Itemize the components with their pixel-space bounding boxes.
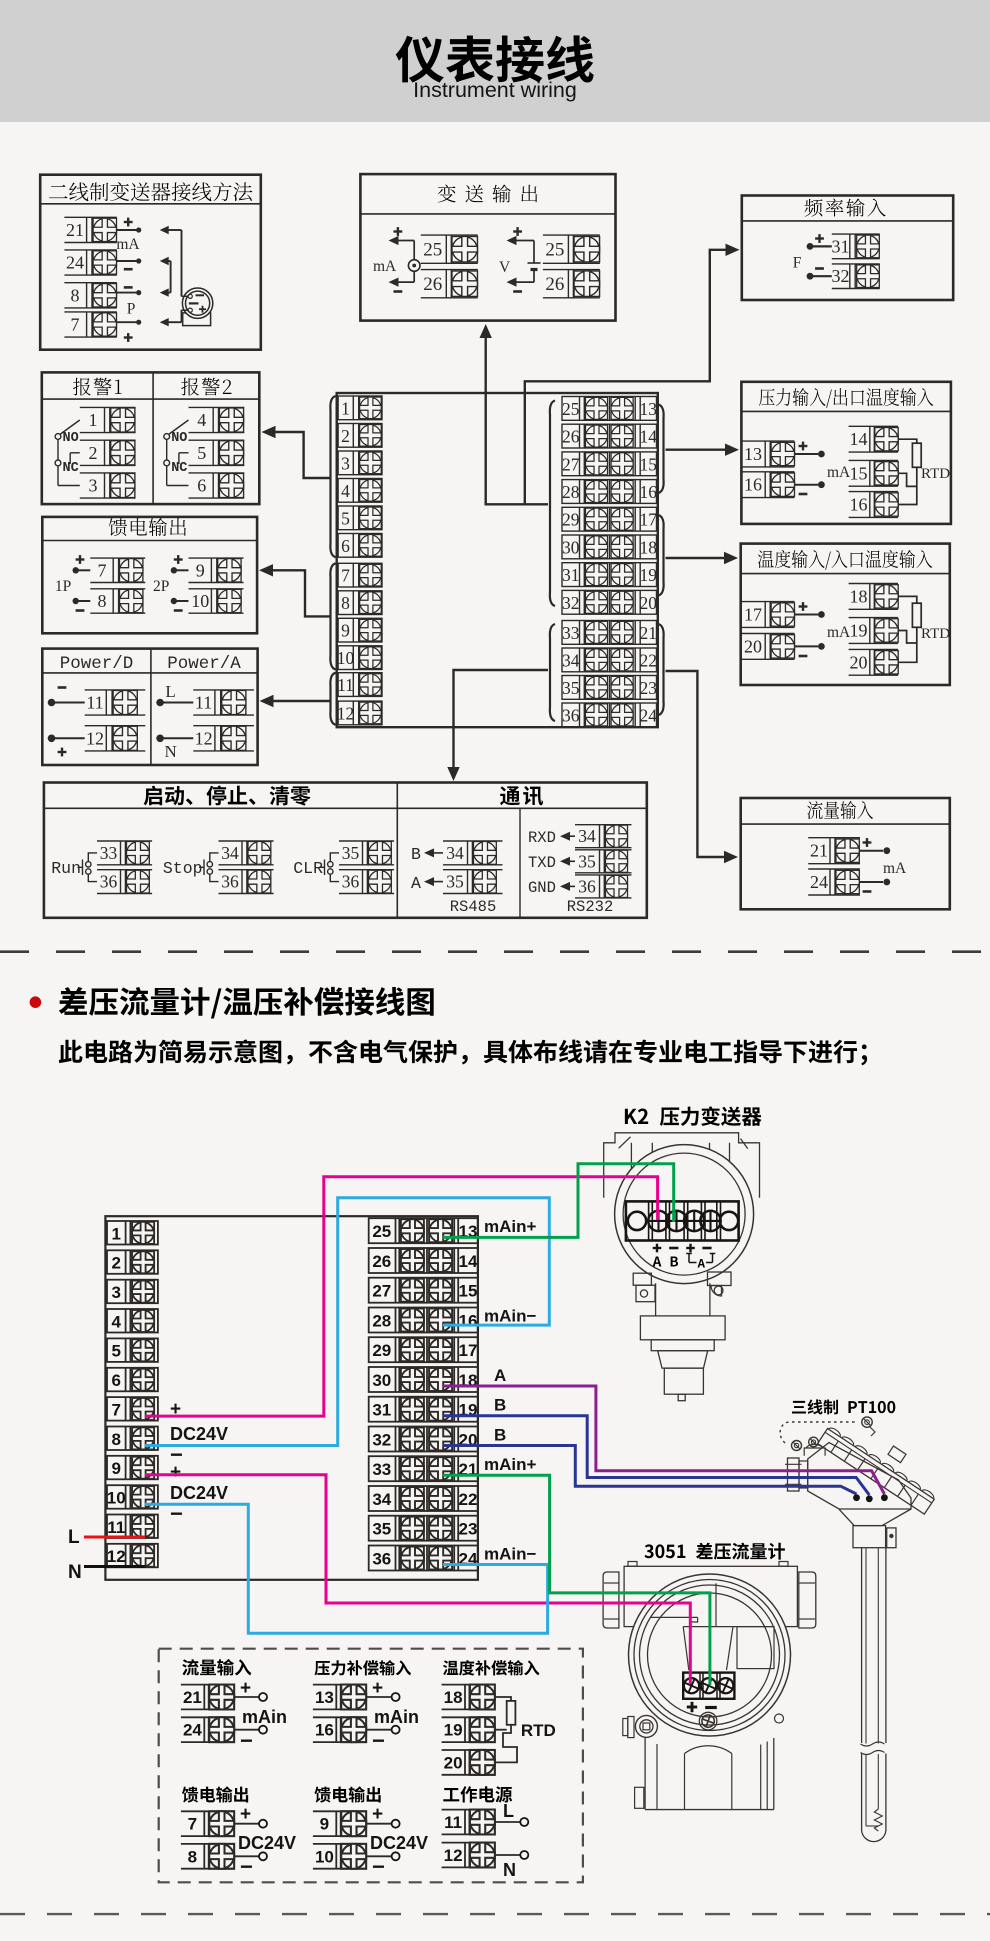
svg-text:16: 16 bbox=[850, 495, 868, 515]
svg-text:5: 5 bbox=[341, 508, 350, 528]
svg-text:7: 7 bbox=[111, 1400, 120, 1419]
svg-text:36: 36 bbox=[100, 872, 118, 892]
svg-text:12: 12 bbox=[195, 728, 213, 748]
svg-text:34: 34 bbox=[446, 843, 464, 863]
svg-text:RXD: RXD bbox=[528, 829, 556, 847]
svg-text:A: A bbox=[411, 874, 421, 893]
svg-text:16: 16 bbox=[315, 1721, 334, 1740]
svg-text:TXD: TXD bbox=[528, 854, 556, 872]
svg-text:−: − bbox=[240, 1728, 253, 1753]
svg-text:11: 11 bbox=[195, 693, 212, 713]
svg-text:CLR: CLR bbox=[293, 859, 323, 878]
svg-text:15: 15 bbox=[640, 454, 658, 474]
svg-text:+: + bbox=[240, 1804, 251, 1825]
svg-text:11: 11 bbox=[444, 1813, 462, 1832]
svg-text:23: 23 bbox=[459, 1520, 478, 1539]
svg-text:11: 11 bbox=[337, 675, 354, 695]
svg-text:25: 25 bbox=[545, 240, 564, 261]
svg-text:22: 22 bbox=[640, 650, 658, 670]
svg-text:20: 20 bbox=[850, 652, 868, 672]
svg-text:35: 35 bbox=[446, 872, 464, 892]
svg-text:10: 10 bbox=[107, 1489, 126, 1508]
svg-text:15: 15 bbox=[459, 1282, 478, 1301]
svg-text:4: 4 bbox=[197, 410, 206, 430]
svg-text:+: + bbox=[372, 1804, 383, 1825]
svg-text:RTD: RTD bbox=[521, 1721, 556, 1740]
svg-text:L: L bbox=[165, 682, 175, 701]
svg-text:24: 24 bbox=[810, 872, 828, 892]
svg-text:−: − bbox=[240, 1854, 253, 1879]
svg-text:3: 3 bbox=[89, 476, 98, 496]
svg-text:23: 23 bbox=[640, 678, 658, 698]
svg-text:GND: GND bbox=[528, 879, 556, 897]
svg-text:35: 35 bbox=[562, 678, 580, 698]
svg-text:31: 31 bbox=[832, 236, 850, 256]
svg-text:P: P bbox=[127, 301, 136, 318]
svg-text:36: 36 bbox=[578, 876, 596, 896]
svg-text:+: + bbox=[372, 1678, 383, 1699]
svg-text:32: 32 bbox=[372, 1431, 391, 1450]
svg-text:V: V bbox=[499, 259, 511, 276]
svg-text:29: 29 bbox=[372, 1341, 391, 1360]
svg-text:31: 31 bbox=[562, 565, 580, 585]
svg-text:N: N bbox=[164, 742, 176, 761]
svg-text:34: 34 bbox=[562, 650, 580, 670]
svg-text:35: 35 bbox=[342, 843, 360, 863]
svg-text:9: 9 bbox=[320, 1815, 329, 1834]
svg-text:mAin+: mAin+ bbox=[484, 1455, 537, 1474]
svg-text:29: 29 bbox=[562, 510, 580, 530]
svg-text:A: A bbox=[494, 1366, 506, 1385]
svg-text:mAin−: mAin− bbox=[484, 1307, 537, 1326]
svg-text:20: 20 bbox=[640, 593, 658, 613]
svg-text:Run: Run bbox=[51, 859, 81, 878]
svg-text:36: 36 bbox=[342, 872, 360, 892]
svg-text:mA: mA bbox=[373, 258, 397, 275]
svg-text:1: 1 bbox=[111, 1224, 120, 1243]
svg-text:1P: 1P bbox=[55, 578, 71, 595]
svg-text:10: 10 bbox=[315, 1847, 334, 1866]
svg-text:NO: NO bbox=[63, 431, 79, 446]
svg-text:5: 5 bbox=[111, 1342, 120, 1361]
svg-text:DC24V: DC24V bbox=[238, 1833, 296, 1853]
svg-text:35: 35 bbox=[372, 1520, 391, 1539]
svg-text:13: 13 bbox=[640, 399, 658, 419]
svg-text:2: 2 bbox=[341, 426, 350, 446]
svg-text:RTD: RTD bbox=[921, 626, 950, 642]
svg-text:30: 30 bbox=[372, 1371, 391, 1390]
svg-text:DC24V: DC24V bbox=[370, 1833, 428, 1853]
svg-text:6: 6 bbox=[341, 536, 350, 556]
svg-text:26: 26 bbox=[545, 274, 564, 295]
svg-text:RS485: RS485 bbox=[450, 898, 497, 916]
svg-text:8: 8 bbox=[341, 593, 350, 613]
svg-text:26: 26 bbox=[562, 427, 580, 447]
svg-text:mAin+: mAin+ bbox=[484, 1217, 537, 1236]
svg-text:32: 32 bbox=[832, 266, 850, 286]
svg-text:6: 6 bbox=[197, 476, 206, 496]
svg-text:27: 27 bbox=[372, 1282, 391, 1301]
svg-text:Stop: Stop bbox=[163, 859, 203, 878]
svg-text:−: − bbox=[372, 1728, 385, 1753]
svg-text:19: 19 bbox=[850, 621, 868, 641]
svg-text:5: 5 bbox=[197, 443, 206, 463]
svg-text:26: 26 bbox=[423, 274, 442, 295]
svg-text:8: 8 bbox=[98, 591, 107, 611]
svg-text:mAin: mAin bbox=[374, 1707, 419, 1727]
svg-text:22: 22 bbox=[459, 1490, 478, 1509]
svg-text:24: 24 bbox=[640, 705, 658, 725]
svg-text:31: 31 bbox=[372, 1401, 391, 1420]
svg-text:4: 4 bbox=[111, 1312, 121, 1331]
svg-text:8: 8 bbox=[111, 1430, 120, 1449]
svg-text:L: L bbox=[503, 1801, 514, 1821]
svg-text:mA: mA bbox=[883, 860, 907, 877]
svg-text:1: 1 bbox=[341, 398, 350, 418]
svg-text:21: 21 bbox=[810, 841, 828, 861]
svg-text:10: 10 bbox=[191, 591, 209, 611]
svg-text:21: 21 bbox=[640, 623, 658, 643]
svg-text:1: 1 bbox=[89, 410, 98, 430]
svg-text:+: + bbox=[240, 1678, 251, 1699]
svg-text:19: 19 bbox=[444, 1721, 463, 1740]
svg-text:mA: mA bbox=[116, 236, 140, 253]
svg-text:32: 32 bbox=[562, 593, 580, 613]
svg-text:28: 28 bbox=[562, 482, 580, 502]
svg-text:NO: NO bbox=[171, 431, 187, 446]
svg-text:8: 8 bbox=[71, 285, 80, 305]
svg-text:25: 25 bbox=[562, 399, 580, 419]
svg-text:14: 14 bbox=[640, 427, 658, 447]
svg-text:21: 21 bbox=[66, 220, 84, 240]
svg-text:mA: mA bbox=[827, 464, 851, 481]
svg-text:20: 20 bbox=[444, 1753, 463, 1772]
svg-text:36: 36 bbox=[562, 705, 580, 725]
svg-text:16: 16 bbox=[459, 1312, 478, 1331]
svg-text:13: 13 bbox=[315, 1688, 334, 1707]
svg-text:10: 10 bbox=[337, 648, 355, 668]
svg-text:mAin: mAin bbox=[242, 1707, 287, 1727]
svg-text:N: N bbox=[503, 1860, 516, 1880]
svg-text:11: 11 bbox=[107, 1518, 125, 1537]
svg-text:14: 14 bbox=[850, 429, 868, 449]
svg-text:DC24V: DC24V bbox=[170, 1483, 228, 1503]
svg-text:L: L bbox=[68, 1527, 80, 1548]
svg-text:Instrument wiring: Instrument wiring bbox=[413, 78, 577, 102]
svg-text:N: N bbox=[68, 1562, 82, 1583]
svg-text:36: 36 bbox=[372, 1550, 391, 1569]
svg-text:27: 27 bbox=[562, 454, 580, 474]
svg-text:RS232: RS232 bbox=[567, 898, 614, 916]
svg-text:21: 21 bbox=[183, 1688, 202, 1707]
svg-text:19: 19 bbox=[640, 565, 658, 585]
svg-text:18: 18 bbox=[850, 586, 868, 606]
svg-text:12: 12 bbox=[107, 1547, 126, 1566]
svg-text:12: 12 bbox=[444, 1846, 463, 1865]
svg-text:24: 24 bbox=[66, 253, 84, 273]
svg-text:12: 12 bbox=[86, 728, 104, 748]
svg-text:17: 17 bbox=[640, 510, 658, 530]
svg-text:16: 16 bbox=[640, 482, 658, 502]
svg-text:16: 16 bbox=[744, 475, 762, 495]
svg-text:17: 17 bbox=[459, 1341, 478, 1360]
svg-text:RTD: RTD bbox=[921, 466, 950, 482]
svg-text:6: 6 bbox=[111, 1371, 120, 1390]
svg-text:35: 35 bbox=[578, 851, 596, 871]
svg-text:7: 7 bbox=[341, 566, 350, 586]
svg-text:24: 24 bbox=[183, 1721, 202, 1740]
svg-text:9: 9 bbox=[196, 560, 205, 580]
svg-text:17: 17 bbox=[744, 605, 762, 625]
svg-text:mA: mA bbox=[827, 624, 851, 641]
svg-text:+: + bbox=[170, 1462, 181, 1483]
svg-text:7: 7 bbox=[98, 560, 107, 580]
svg-text:28: 28 bbox=[372, 1312, 391, 1331]
svg-text:25: 25 bbox=[372, 1222, 391, 1241]
svg-text:34: 34 bbox=[372, 1490, 391, 1509]
svg-text:33: 33 bbox=[562, 623, 580, 643]
svg-text:20: 20 bbox=[744, 636, 762, 656]
svg-text:3: 3 bbox=[341, 453, 350, 473]
svg-text:14: 14 bbox=[459, 1252, 478, 1271]
svg-text:B: B bbox=[494, 1426, 506, 1445]
svg-text:18: 18 bbox=[640, 537, 658, 557]
svg-text:−: − bbox=[372, 1854, 385, 1879]
svg-text:F: F bbox=[793, 255, 802, 272]
svg-text:2P: 2P bbox=[153, 578, 169, 595]
svg-text:12: 12 bbox=[337, 703, 355, 723]
svg-text:Power/A: Power/A bbox=[167, 654, 241, 674]
svg-text:15: 15 bbox=[850, 463, 868, 483]
svg-text:7: 7 bbox=[188, 1815, 197, 1834]
svg-text:30: 30 bbox=[562, 537, 580, 557]
svg-text:B: B bbox=[411, 845, 421, 864]
svg-text:34: 34 bbox=[221, 843, 239, 863]
svg-text:7: 7 bbox=[71, 315, 80, 335]
svg-text:25: 25 bbox=[423, 240, 442, 261]
svg-text:8: 8 bbox=[188, 1847, 197, 1866]
svg-text:33: 33 bbox=[100, 843, 118, 863]
svg-text:4: 4 bbox=[341, 481, 350, 501]
svg-text:18: 18 bbox=[444, 1688, 463, 1707]
svg-text:9: 9 bbox=[111, 1459, 120, 1478]
svg-text:mAin−: mAin− bbox=[484, 1545, 537, 1564]
svg-text:2: 2 bbox=[111, 1254, 120, 1273]
svg-text:2: 2 bbox=[89, 443, 98, 463]
svg-text:3: 3 bbox=[111, 1283, 120, 1302]
svg-text:33: 33 bbox=[372, 1460, 391, 1479]
svg-text:DC24V: DC24V bbox=[170, 1424, 228, 1444]
svg-text:11: 11 bbox=[86, 693, 103, 713]
svg-text:Power/D: Power/D bbox=[60, 654, 134, 674]
svg-text:34: 34 bbox=[578, 826, 596, 846]
svg-text:13: 13 bbox=[744, 444, 762, 464]
svg-text:9: 9 bbox=[341, 621, 350, 641]
svg-text:36: 36 bbox=[221, 872, 239, 892]
svg-text:26: 26 bbox=[372, 1252, 391, 1271]
svg-text:B: B bbox=[494, 1396, 506, 1415]
